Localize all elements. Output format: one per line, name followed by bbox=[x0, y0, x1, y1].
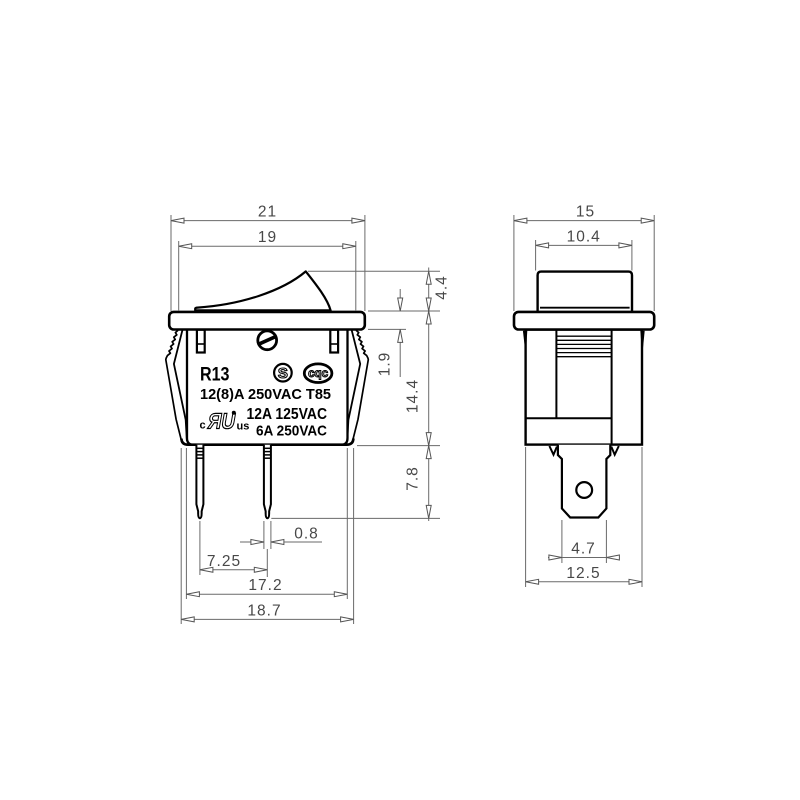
svg-text:14.4: 14.4 bbox=[405, 379, 422, 413]
svg-text:12(8)A 250VAC T85: 12(8)A 250VAC T85 bbox=[200, 386, 331, 403]
svg-text:10.4: 10.4 bbox=[567, 228, 601, 245]
svg-text:19: 19 bbox=[258, 229, 277, 246]
svg-text:4.4: 4.4 bbox=[434, 275, 451, 300]
svg-text:17.2: 17.2 bbox=[248, 577, 282, 594]
svg-text:R13: R13 bbox=[200, 365, 230, 386]
svg-text:18.7: 18.7 bbox=[247, 602, 281, 619]
svg-text:6A 250VAC: 6A 250VAC bbox=[256, 423, 327, 440]
svg-text:cqc: cqc bbox=[308, 368, 329, 380]
svg-text:12A 125VAC: 12A 125VAC bbox=[247, 406, 328, 423]
svg-text:15: 15 bbox=[576, 204, 595, 221]
svg-text:us: us bbox=[237, 421, 250, 433]
svg-text:S: S bbox=[278, 365, 288, 382]
svg-text:0.8: 0.8 bbox=[294, 526, 319, 543]
svg-text:21: 21 bbox=[258, 204, 277, 221]
svg-text:7.25: 7.25 bbox=[207, 553, 241, 570]
svg-text:4.7: 4.7 bbox=[571, 541, 596, 558]
svg-text:7.8: 7.8 bbox=[405, 466, 422, 491]
svg-text:12.5: 12.5 bbox=[566, 565, 600, 582]
svg-text:c: c bbox=[200, 420, 206, 432]
svg-text:1.9: 1.9 bbox=[377, 352, 394, 377]
